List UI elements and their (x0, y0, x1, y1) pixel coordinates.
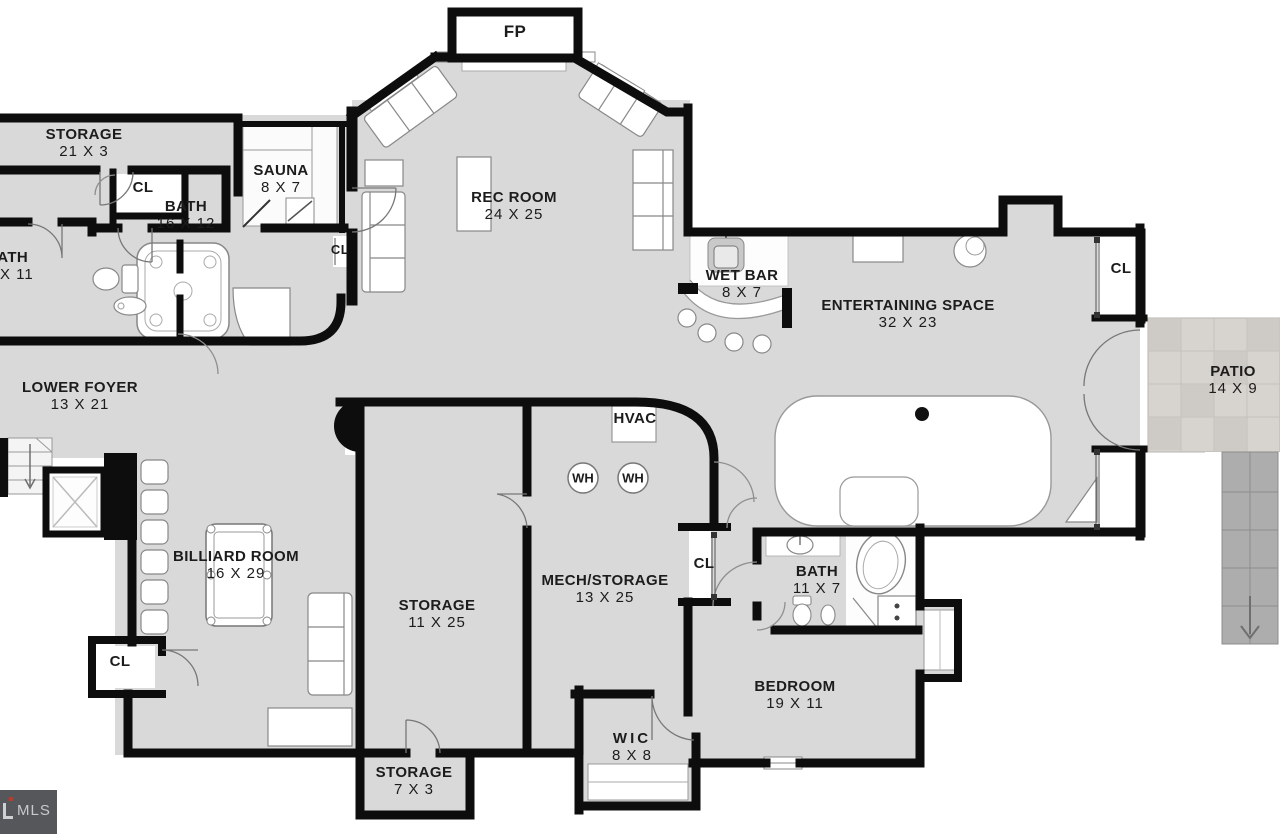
room-label-bath-lower: BATH 11 X 7 (793, 564, 841, 598)
game-area (775, 396, 1051, 526)
sink-icon (787, 536, 813, 554)
room-label-sauna: SAUNA 8 X 7 (253, 163, 308, 197)
room-label-entertaining: ENTERTAINING SPACE 32 X 23 (821, 298, 994, 332)
room-label-closet: CL (331, 243, 349, 258)
mls-logo-icon (3, 803, 13, 819)
room-label-bath-main: BATH 16 X 12 (157, 199, 216, 233)
golf-hole-icon (915, 407, 929, 421)
bar-sink-icon (708, 232, 744, 272)
bookcase-icon (633, 150, 673, 250)
room-label-billiard: BILLIARD ROOM 16 X 29 (173, 549, 299, 583)
floor-plan: FP STORAGE 21 X 3 CL SAUNA 8 X 7 BATH 16… (0, 0, 1280, 834)
table-icon (853, 236, 903, 262)
toilet-icon (793, 596, 811, 626)
sofa-icon (308, 593, 352, 695)
sofa-icon (362, 192, 405, 292)
room-label-closet: CL (110, 654, 131, 671)
closet-interior (1098, 452, 1138, 528)
vanity-icon (878, 596, 916, 628)
room-label-storage-top: STORAGE 21 X 3 (46, 127, 123, 161)
bidet-icon (114, 297, 146, 315)
room-label-wet-bar: WET BAR 8 X 7 (706, 268, 779, 302)
room-label-storage-small: STORAGE 7 X 3 (376, 765, 453, 799)
room-label-rec-room: REC ROOM 24 X 25 (471, 190, 557, 224)
exterior-stairs (1205, 452, 1280, 648)
water-heater-label: WH (622, 471, 644, 486)
room-label-patio: PATIO 14 X 9 (1208, 364, 1257, 398)
side-table-icon (365, 160, 403, 186)
water-heater-label: WH (572, 471, 594, 486)
room-label-fireplace: FP (504, 22, 527, 41)
room-label-bath-left: BATH X 11 (0, 250, 34, 284)
bidet-icon (821, 605, 835, 625)
room-label-hvac: HVAC (614, 411, 657, 428)
room-label-closet: CL (133, 180, 154, 197)
wic-closet-shelf (588, 764, 688, 800)
elevator (46, 470, 104, 534)
room-label-storage-mid: STORAGE 11 X 25 (399, 598, 476, 632)
room-label-bedroom: BEDROOM 19 X 11 (754, 679, 835, 713)
room-label-lower-foyer: LOWER FOYER 13 X 21 (22, 380, 138, 414)
room-label-closet: CL (1111, 261, 1132, 278)
table-icon (268, 708, 352, 746)
mls-watermark: MLS (0, 790, 57, 834)
bedroom-alcove (924, 610, 956, 670)
room-label-wic: WIC 8 X 8 (612, 731, 652, 765)
armchair-icon (954, 235, 986, 267)
room-label-mech-storage: MECH/STORAGE 13 X 25 (541, 573, 668, 607)
room-label-closet: CL (694, 556, 715, 573)
mls-logo-icon (9, 797, 13, 801)
mls-brand-text: MLS (17, 802, 51, 819)
